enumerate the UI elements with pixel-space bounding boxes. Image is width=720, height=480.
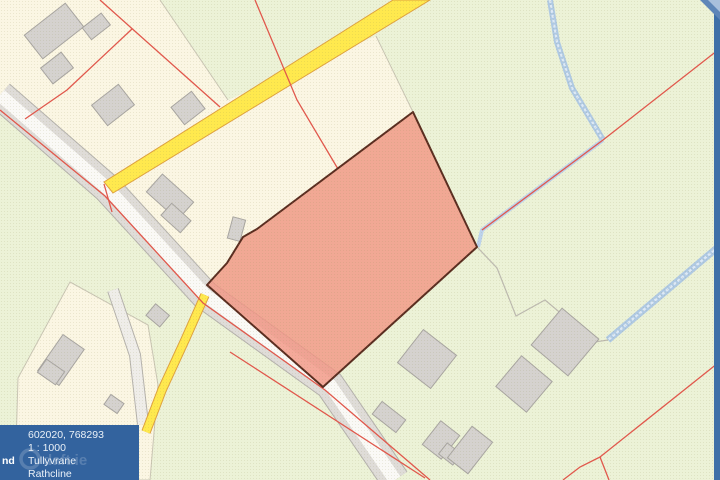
clipped-townland-label: nd xyxy=(2,455,15,467)
electoral-division-name: Rathcline xyxy=(28,468,72,480)
map-viewer-screen: 602020, 768293 1 : 1000 Tullyvrane Rathc… xyxy=(0,0,720,480)
map-dot-texture xyxy=(0,0,720,480)
coordinates-readout: 602020, 768293 xyxy=(28,429,104,441)
info-panel: 602020, 768293 1 : 1000 Tullyvrane Rathc… xyxy=(0,425,139,480)
cadastral-map-canvas[interactable]: 602020, 768293 1 : 1000 Tullyvrane Rathc… xyxy=(0,0,720,480)
watermark-text: daft.ie xyxy=(43,452,87,469)
